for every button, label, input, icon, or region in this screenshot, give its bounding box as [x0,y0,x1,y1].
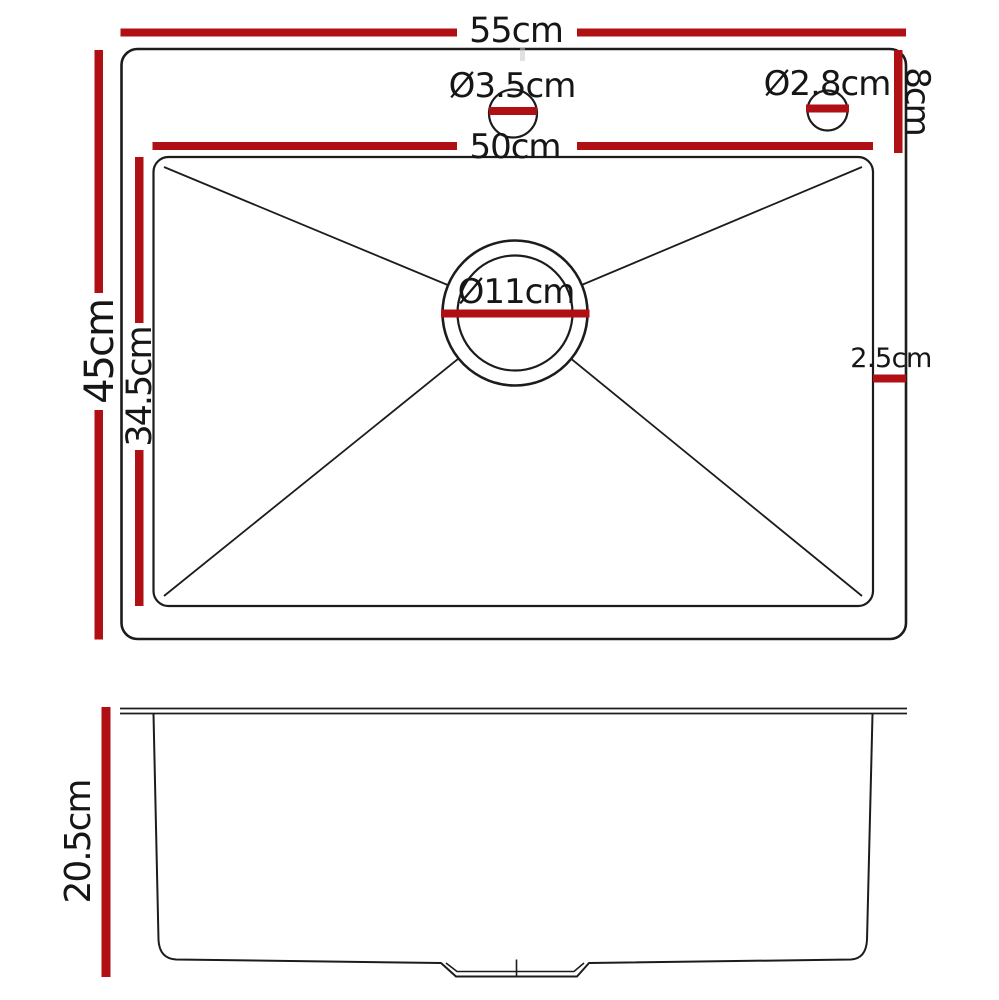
outer-width-label: 55cm [469,11,563,51]
outer-width-bar-right [577,29,906,37]
bowl-profile-outline [154,714,873,977]
outer-depth-label: 45cm [77,300,123,404]
outer-depth-bar-top [95,50,104,293]
tap-hole-diameter-bar [489,107,537,115]
second-hole-diameter-bar [806,105,849,113]
diagram-svg: Ø11cm Ø3.5cm Ø2.8cm 55cm 50cm 45cm 34.5c… [0,0,999,1000]
bowl-depth-label: 34.5cm [120,327,160,446]
outer-depth-bar-bottom [95,410,104,640]
bowl-depth-bar-bottom [135,450,144,606]
tap-hole-diameter-label: Ø3.5cm [449,66,576,106]
drain-diameter-label: Ø11cm [458,272,575,312]
inner-width-bar-right [577,142,873,150]
side-lip-bar [873,375,906,383]
sink-dimension-diagram: Ø11cm Ø3.5cm Ø2.8cm 55cm 50cm 45cm 34.5c… [0,0,999,1000]
bowl-height-bar [102,707,111,977]
drain-recess-detail [446,963,584,972]
second-hole-diameter-label: Ø2.8cm [764,64,891,104]
outer-width-bar-left [121,29,458,37]
inner-width-bar-left [153,142,458,150]
inner-width-label: 50cm [469,127,560,167]
side-lip-label: 2.5cm [850,343,932,374]
bowl-depth-bar-top [135,157,144,323]
bowl-height-label: 20.5cm [58,780,99,903]
rear-ledge-label: 8cm [897,67,937,134]
